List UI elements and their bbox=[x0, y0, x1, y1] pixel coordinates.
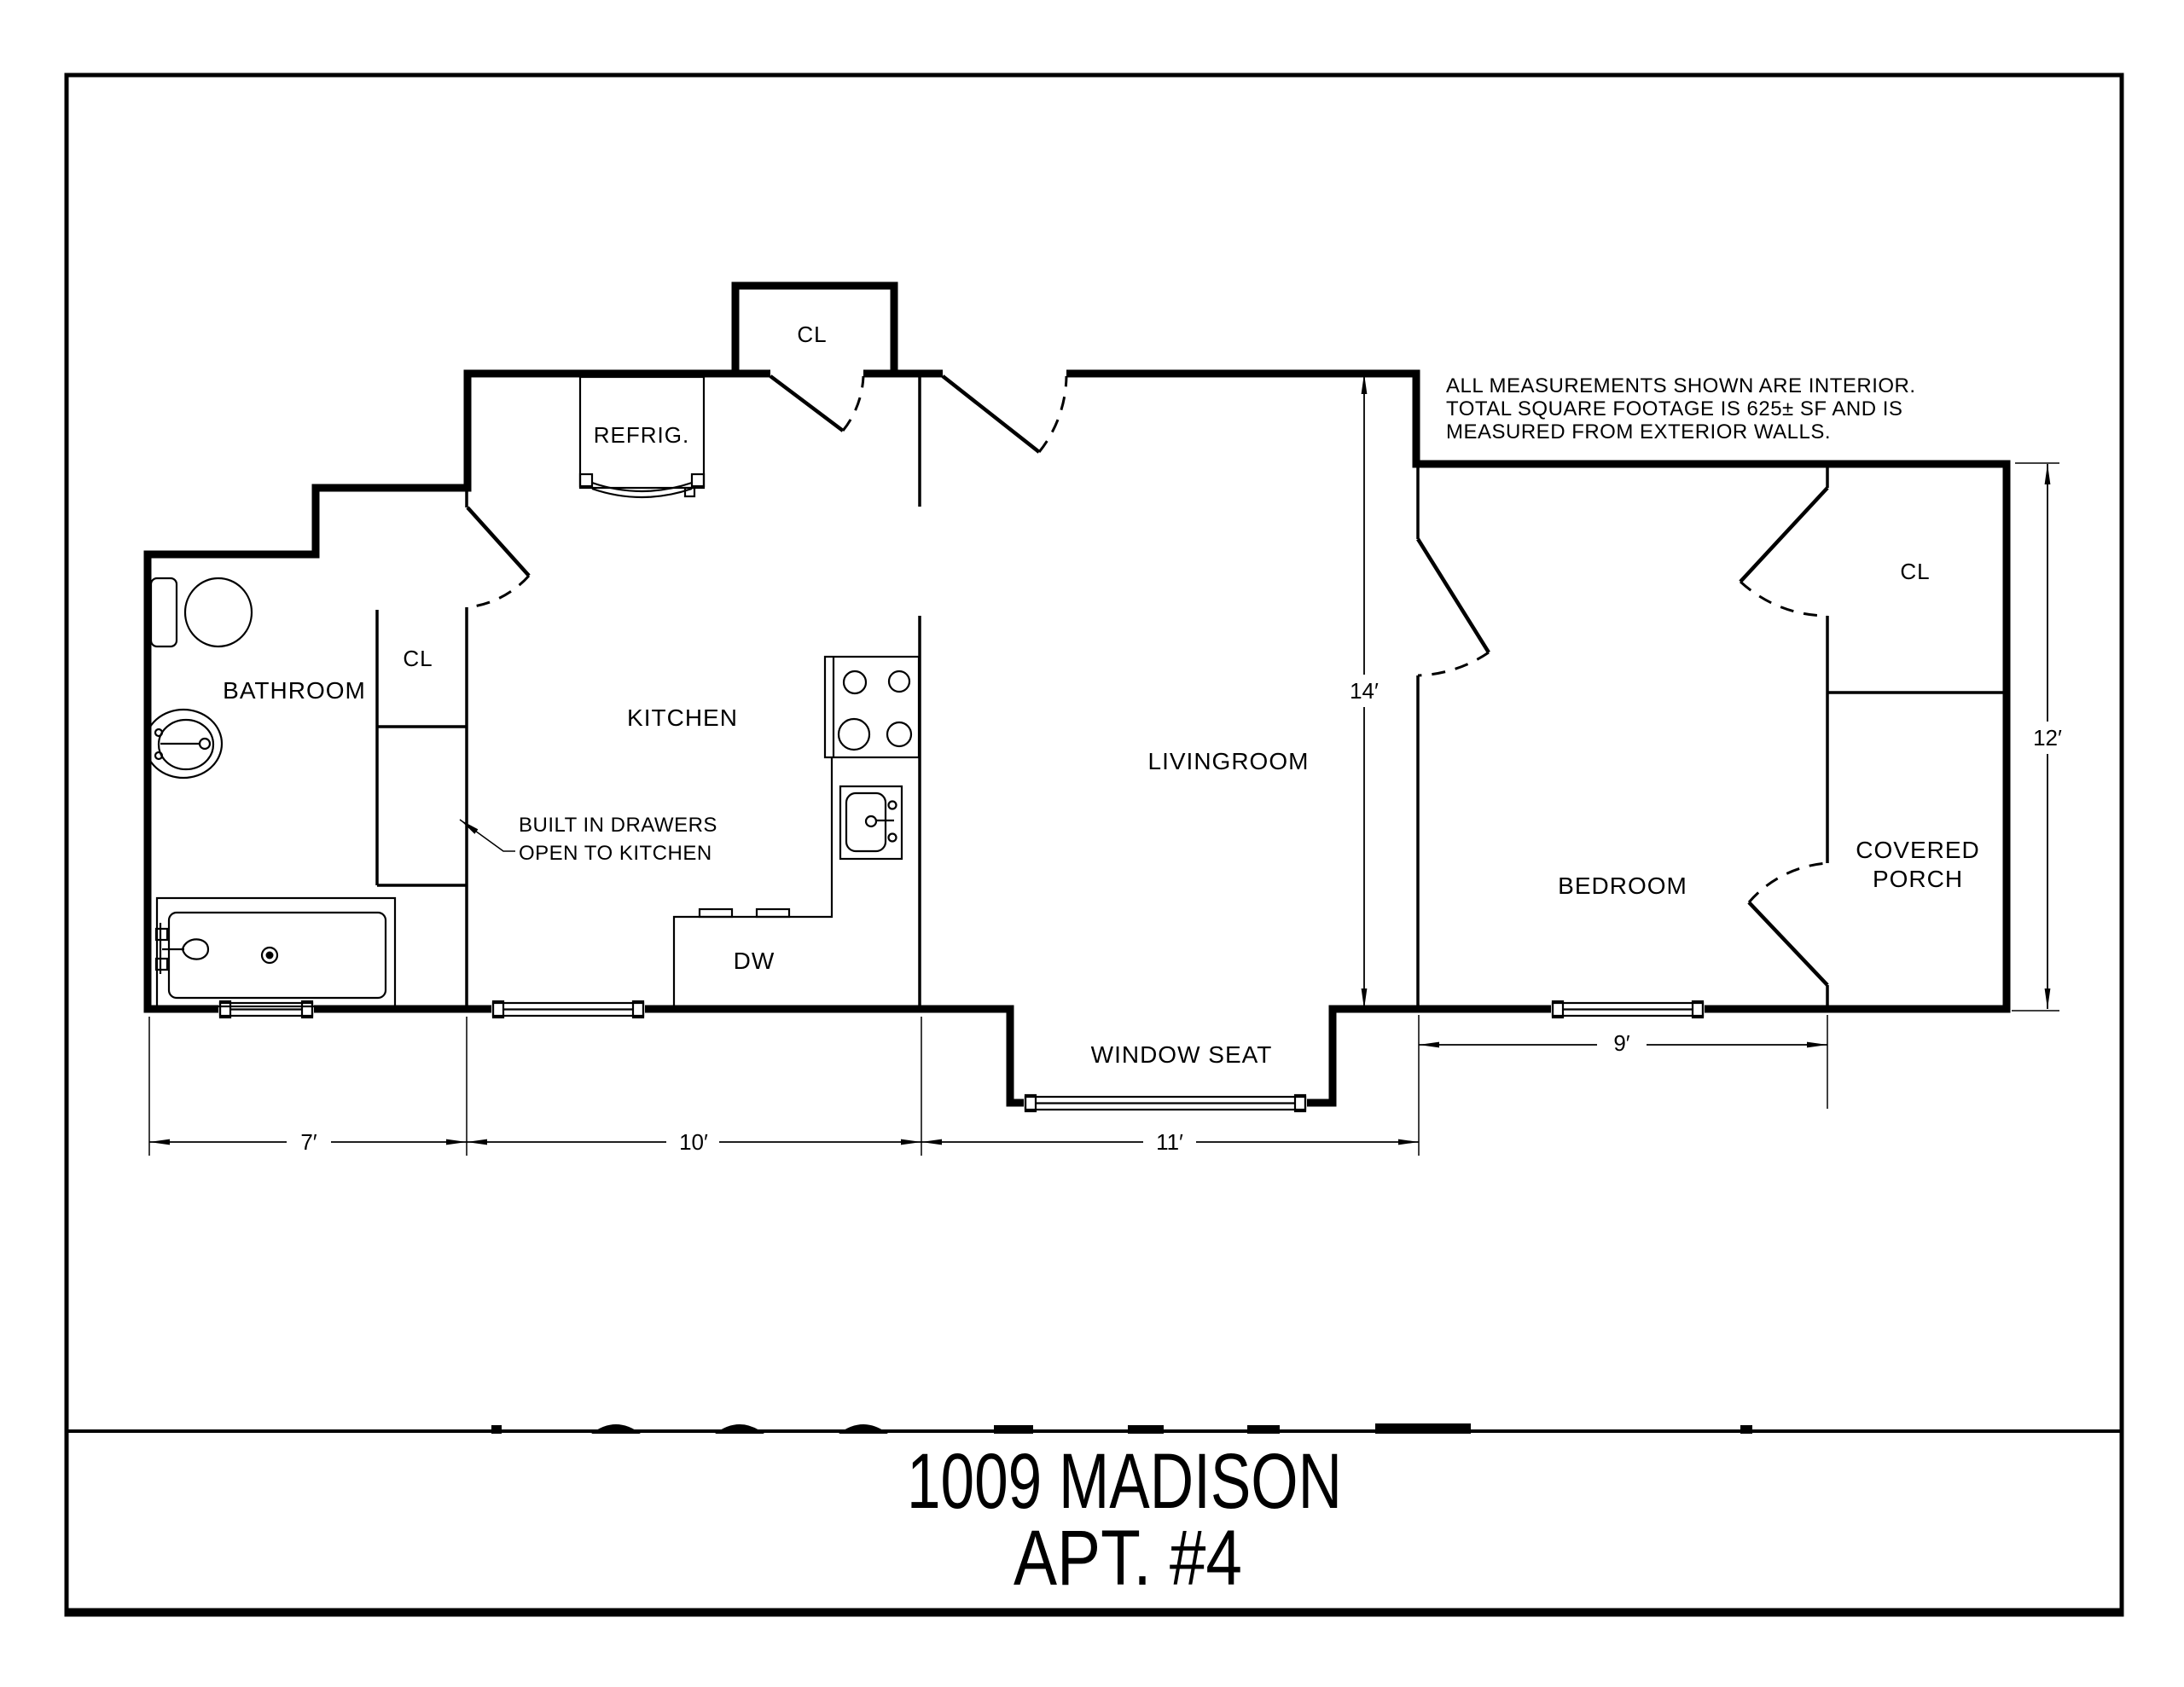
label-bathroom-closet: CL bbox=[403, 646, 433, 671]
dim-label-right-depth: 12′ bbox=[2033, 725, 2062, 751]
label-entry-closet: CL bbox=[797, 322, 827, 347]
drawers-note-line2: OPEN TO KITCHEN bbox=[519, 842, 712, 865]
cabinet-front bbox=[700, 909, 732, 917]
floor-plan-drawing: 1009 MADISON APT. #4 bbox=[0, 0, 2184, 1687]
label-bedroom-closet: CL bbox=[1900, 559, 1930, 584]
porch-door bbox=[1749, 863, 1827, 985]
toilet-tank bbox=[151, 578, 177, 646]
title-block: 1009 MADISON APT. #4 bbox=[907, 1438, 1342, 1602]
dim-label-livingroom-width: 11′ bbox=[1156, 1129, 1183, 1155]
dim-label-livingroom-depth: 14′ bbox=[1350, 678, 1379, 704]
drawers-note-line1: BUILT IN DRAWERS bbox=[519, 814, 717, 837]
cabinet-front bbox=[757, 909, 789, 917]
windows bbox=[218, 1000, 1705, 1111]
dim-label-bedroom-width: 9′ bbox=[1613, 1030, 1629, 1056]
bedroom-door bbox=[1418, 539, 1489, 675]
label-bathroom: BATHROOM bbox=[223, 677, 366, 704]
sink-knob-icon bbox=[889, 834, 897, 842]
exterior-walls bbox=[148, 374, 2007, 1103]
burner-icon bbox=[887, 722, 911, 746]
label-covered-porch-line2: PORCH bbox=[1873, 866, 1963, 892]
burner-icon bbox=[844, 671, 866, 693]
floor-plan-sheet: 1009 MADISON APT. #4 bbox=[0, 0, 2184, 1687]
bathroom-sink bbox=[145, 710, 222, 778]
kitchen-door bbox=[468, 507, 529, 607]
burner-icon bbox=[889, 671, 909, 692]
note-line3: MEASURED FROM EXTERIOR WALLS. bbox=[1446, 420, 1831, 443]
faucet-icon bbox=[866, 816, 876, 826]
label-covered-porch-line1: COVERED bbox=[1856, 837, 1979, 863]
sink-drain-icon bbox=[200, 739, 210, 749]
toilet bbox=[151, 578, 252, 646]
bathroom-window bbox=[218, 1000, 314, 1017]
stove bbox=[825, 657, 919, 757]
label-livingroom: LIVINGROOM bbox=[1148, 748, 1310, 774]
note-line1: ALL MEASUREMENTS SHOWN ARE INTERIOR. bbox=[1446, 374, 1916, 397]
label-bedroom: BEDROOM bbox=[1558, 872, 1687, 899]
kitchen-sink bbox=[840, 786, 902, 859]
dim-label-kitchen-width: 10′ bbox=[679, 1129, 708, 1155]
toilet-bowl bbox=[185, 578, 252, 646]
entry-closet-door bbox=[770, 376, 863, 431]
burner-icon bbox=[839, 719, 869, 750]
label-dishwasher: DW bbox=[734, 948, 775, 974]
dim-label-bathroom-width: 7′ bbox=[300, 1129, 317, 1155]
annotations: ALL MEASUREMENTS SHOWN ARE INTERIOR. TOT… bbox=[460, 374, 1916, 865]
window-seat-window bbox=[1024, 1093, 1307, 1111]
label-refrigerator: REFRIG. bbox=[594, 422, 689, 448]
bathtub bbox=[156, 898, 395, 1006]
sheet-border bbox=[67, 75, 2122, 1615]
note-line2: TOTAL SQUARE FOOTAGE IS 625± SF AND IS bbox=[1446, 397, 1902, 420]
bedroom-closet-door bbox=[1740, 488, 1827, 616]
label-window-seat: WINDOW SEAT bbox=[1091, 1041, 1273, 1068]
entry-door bbox=[943, 376, 1066, 452]
label-kitchen: KITCHEN bbox=[627, 704, 738, 731]
tub-spout-icon bbox=[183, 939, 208, 959]
title-address: 1009 MADISON bbox=[907, 1438, 1342, 1525]
title-apartment: APT. #4 bbox=[1014, 1515, 1242, 1602]
sink-knob-icon bbox=[889, 802, 897, 809]
kitchen-window bbox=[491, 1000, 645, 1017]
bedroom-window bbox=[1551, 1000, 1705, 1017]
